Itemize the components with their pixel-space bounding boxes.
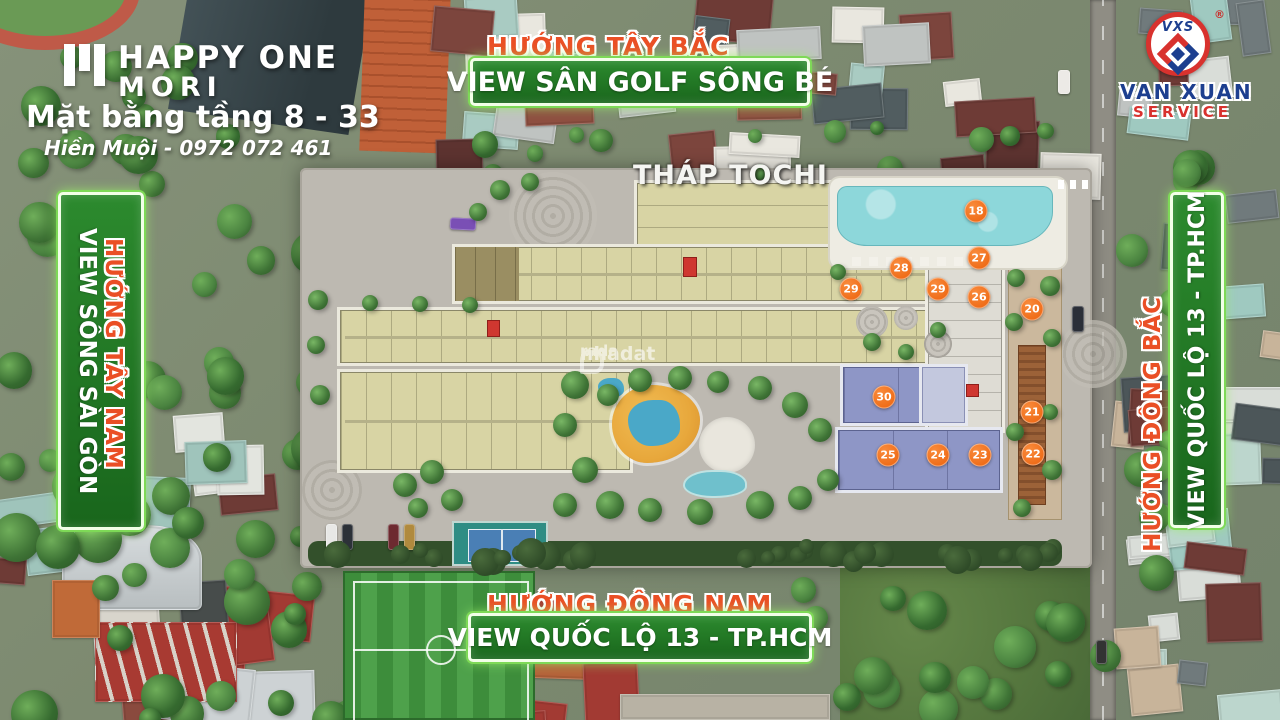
tower-label: THÁP TOCHI	[633, 160, 828, 191]
floor-plan-title: Mặt bằng tầng 8 - 33	[26, 100, 380, 135]
masterplan-image: 18272829292620302125242322 HAPPY ONE MOR…	[0, 0, 1280, 720]
view-banner-northeast: VIEW QUỐC LỘ 13 - TP.HCM	[1170, 192, 1224, 528]
registered-mark: ®	[1214, 8, 1225, 21]
view-banner-northwest: VIEW SÂN GOLF SÔNG BÉ	[470, 58, 810, 106]
view-banner-southwest-text: VIEW SÔNG SÀI GÒN	[74, 228, 100, 494]
agency-name: VAN XUAN	[1120, 80, 1253, 104]
logo-bar	[64, 44, 75, 86]
vxs-diamond	[1157, 33, 1199, 75]
view-banner-southeast-text: VIEW QUỐC LỘ 13 - TP.HCM	[448, 623, 833, 652]
direction-label-northeast: HƯỚNG ĐÔNG BẮC	[1140, 296, 1166, 552]
agent-contact: Hiền Muội - 0972 072 461	[44, 136, 332, 160]
direction-label-southwest: HƯỚNG TÂY NAM	[100, 238, 126, 470]
van-xuan-logo: VXS	[1146, 12, 1210, 76]
watermark-suffix: .vn	[580, 344, 597, 364]
agency-service-label: SERVICE	[1133, 103, 1232, 121]
logo-bar	[79, 44, 90, 71]
overlay-labels: HAPPY ONE MORI Mặt bằng tầng 8 - 33 Hiền…	[0, 0, 1280, 720]
happy-one-logo-mark	[64, 44, 110, 86]
direction-label-northwest: HƯỚNG TÂY BẮC	[487, 32, 729, 61]
view-banner-southeast: VIEW QUỐC LỘ 13 - TP.HCM	[468, 613, 812, 662]
brand-name-line2: MORI	[118, 72, 223, 103]
view-banner-northwest-text: VIEW SÂN GOLF SÔNG BÉ	[447, 67, 834, 98]
logo-bar	[94, 44, 105, 86]
view-banner-northeast-text: VIEW QUỐC LỘ 13 - TP.HCM	[1185, 191, 1210, 530]
brand-name-line1: HAPPY ONE	[118, 40, 338, 76]
